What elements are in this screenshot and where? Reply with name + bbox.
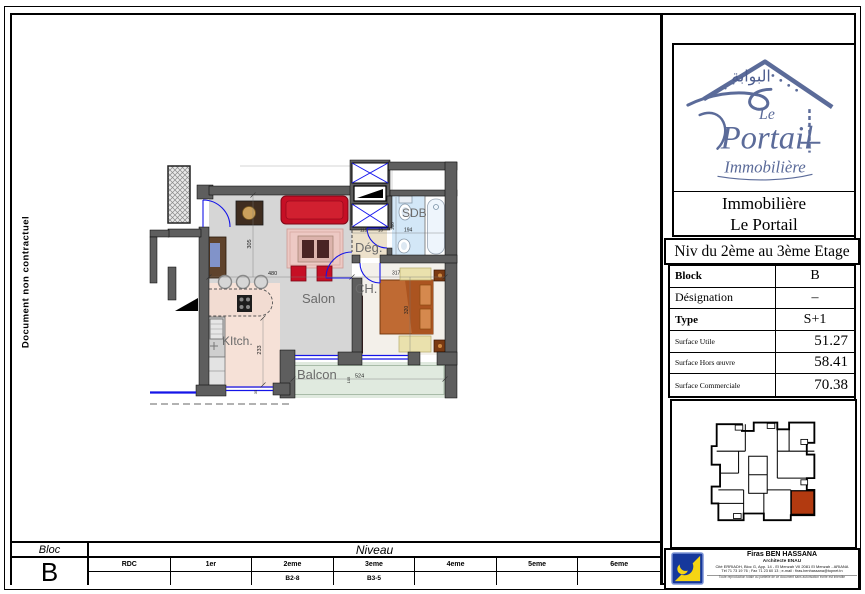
level-name: 6eme bbox=[578, 558, 660, 572]
agency-logo-box: البوابة Le Portail Immobilière Immobiliè… bbox=[672, 43, 856, 237]
bar-stool-2 bbox=[237, 276, 250, 289]
level-name: 4eme bbox=[415, 558, 496, 572]
bathtub-inner bbox=[428, 199, 445, 254]
dim-balcony-height: 105 bbox=[346, 376, 351, 383]
level-unit bbox=[497, 572, 578, 585]
panel-divider bbox=[660, 13, 663, 585]
pouf-right bbox=[317, 266, 332, 281]
side-table-bowl bbox=[243, 207, 256, 220]
bar-stool-1 bbox=[219, 276, 232, 289]
dim-bedroom-width: 317 bbox=[392, 271, 401, 277]
row-label: Désignation bbox=[670, 288, 775, 309]
dim-hallway-gap: 10 bbox=[378, 228, 384, 233]
stove bbox=[237, 295, 252, 312]
nightstand-knob bbox=[438, 344, 442, 348]
dim-bedroom-height: 320 bbox=[404, 306, 410, 315]
architect-contact: Tél 71 73 19 76 ; Fax 71 23 60 13 ; e-ma… bbox=[707, 569, 857, 573]
architect-stamp: Firas BEN HASSANA Architecte ENAU Cité E… bbox=[664, 548, 860, 590]
table-row: Block B bbox=[670, 266, 854, 288]
table-row: Surface Hors œuvre 58.41 bbox=[670, 353, 854, 375]
bidet-inner bbox=[401, 242, 407, 250]
bloc-header: Bloc bbox=[12, 543, 89, 558]
agency-name-line2: Le Portail bbox=[674, 214, 854, 235]
architect-note: Toute reproduction totale ou partielle d… bbox=[707, 575, 857, 580]
balcony-label: Balcon bbox=[297, 367, 337, 382]
level-name: RDC bbox=[89, 558, 170, 572]
level-title: Niv du 2ème au 3ème Etage bbox=[664, 238, 860, 265]
pillow-top bbox=[420, 285, 431, 305]
level-unit bbox=[171, 572, 252, 585]
key-plan-box bbox=[670, 399, 857, 549]
floor-plan-drawing: 480 317 305 233 320 115 10 194 200 524 1… bbox=[148, 58, 470, 410]
toilet-tank bbox=[399, 196, 412, 203]
row-label: Surface Commerciale bbox=[670, 374, 775, 396]
table-row: Surface Utile 51.27 bbox=[670, 331, 854, 353]
row-label: Type bbox=[670, 309, 775, 330]
agency-name-line1: Immobilière bbox=[674, 193, 854, 214]
key-plan-drawing bbox=[683, 406, 843, 541]
row-label: Surface Hors œuvre bbox=[670, 353, 775, 374]
dim-balcony-width: 524 bbox=[355, 374, 364, 380]
row-value: – bbox=[775, 288, 854, 309]
bed-mat-top bbox=[400, 268, 431, 280]
logo-portail-text: Portail bbox=[720, 121, 813, 157]
sofa-cushions bbox=[286, 201, 343, 219]
dim-salon-width: 480 bbox=[268, 271, 277, 277]
stove-burner bbox=[240, 305, 244, 309]
salon-label: Salon bbox=[302, 291, 335, 306]
level-column: 4eme bbox=[415, 558, 497, 585]
stove-burner bbox=[246, 298, 250, 302]
coffee-table-top-right bbox=[317, 240, 329, 258]
dim-bathroom-width: 194 bbox=[404, 228, 413, 234]
highlighted-unit bbox=[791, 491, 814, 515]
architect-info: Firas BEN HASSANA Architecte ENAU Cité E… bbox=[707, 551, 857, 580]
row-label: Surface Utile bbox=[670, 331, 775, 352]
level-column: 3eme B3-5 bbox=[334, 558, 416, 585]
hallway-label: Dég. bbox=[355, 240, 382, 255]
floor-plan-sheet: { "page": { "watermark": "Document non c… bbox=[0, 0, 865, 594]
level-column: 5eme bbox=[497, 558, 579, 585]
row-value: 51.27 bbox=[775, 331, 854, 352]
bedroom-label: CH. bbox=[355, 281, 377, 296]
non-contractual-watermark: Document non contractuel bbox=[21, 216, 32, 348]
bar-stool-3 bbox=[255, 276, 268, 289]
level-unit bbox=[415, 572, 496, 585]
shaft-room-floor bbox=[392, 170, 445, 192]
row-value: B bbox=[775, 266, 854, 287]
dim-bathroom-height: 200 bbox=[390, 222, 395, 230]
table-row: Surface Commerciale 70.38 bbox=[670, 374, 854, 396]
console-item bbox=[210, 243, 220, 267]
architect-logo-icon bbox=[671, 552, 704, 585]
table-row: Désignation – bbox=[670, 288, 854, 310]
bathroom-label: SDB bbox=[402, 206, 427, 220]
level-bar: Bloc B Niveau RDC 1er 2eme B2-8 3eme B3-… bbox=[12, 541, 660, 585]
level-unit bbox=[578, 572, 660, 585]
niveau-header: Niveau bbox=[89, 543, 660, 558]
dim-kitchen-height: 233 bbox=[257, 345, 263, 354]
coffee-table-top-left bbox=[302, 240, 314, 258]
architect-name: Firas BEN HASSANA bbox=[707, 551, 857, 559]
kitchen-label: KItch. bbox=[222, 334, 253, 348]
row-value: 70.38 bbox=[775, 374, 854, 396]
level-unit: B2-8 bbox=[252, 572, 333, 585]
pouf-left bbox=[291, 266, 306, 281]
dim-hallway-width: 115 bbox=[360, 228, 368, 233]
row-label: Block bbox=[670, 266, 775, 287]
row-value: S+1 bbox=[775, 309, 854, 330]
dim-kitchen-offset: 35 bbox=[253, 389, 258, 394]
level-name: 2eme bbox=[252, 558, 333, 572]
level-column: 1er bbox=[171, 558, 253, 585]
dim-salon-height: 305 bbox=[247, 239, 253, 248]
agency-logo-icon: البوابة Le Portail Immobilière bbox=[674, 45, 852, 187]
row-value: 58.41 bbox=[775, 353, 854, 374]
stove-burner bbox=[240, 298, 244, 302]
level-unit bbox=[89, 572, 170, 585]
logo-immobiliere-script: Immobilière bbox=[723, 157, 806, 176]
bed-mat-bottom bbox=[399, 336, 431, 352]
unit-info-table: Block B Désignation – Type S+1 Surface U… bbox=[668, 264, 856, 398]
logo-arabic-text: البوابة bbox=[731, 66, 770, 86]
level-unit: B3-5 bbox=[334, 572, 415, 585]
stove-burner bbox=[246, 305, 250, 309]
level-column: RDC bbox=[89, 558, 171, 585]
level-name: 5eme bbox=[497, 558, 578, 572]
level-name: 1er bbox=[171, 558, 252, 572]
pillow-bottom bbox=[420, 309, 431, 329]
agency-name: Immobilière Le Portail bbox=[674, 191, 854, 235]
level-name: 3eme bbox=[334, 558, 415, 572]
level-column: 6eme bbox=[578, 558, 660, 585]
neighbor-hatch-block bbox=[168, 166, 190, 223]
level-columns: RDC 1er 2eme B2-8 3eme B3-5 4eme 5eme 6e… bbox=[89, 558, 660, 585]
stair-arrow bbox=[175, 298, 198, 311]
table-row: Type S+1 bbox=[670, 309, 854, 331]
level-column: 2eme B2-8 bbox=[252, 558, 334, 585]
bloc-value: B bbox=[12, 558, 89, 585]
